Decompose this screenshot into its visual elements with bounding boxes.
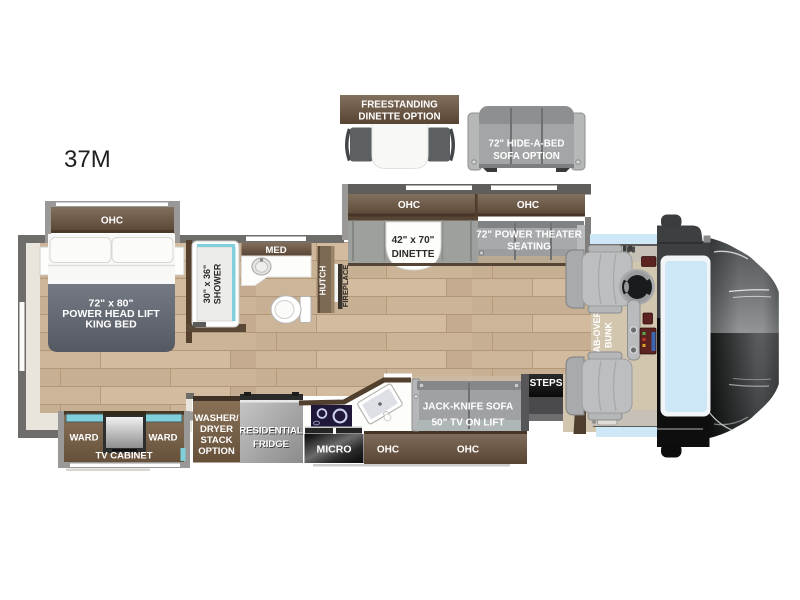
svg-text:KING BED: KING BED	[85, 319, 137, 331]
svg-text:FREESTANDING: FREESTANDING	[361, 100, 438, 111]
svg-text:MED: MED	[265, 245, 286, 256]
svg-text:30" x 36": 30" x 36"	[202, 265, 212, 304]
svg-text:STACK: STACK	[200, 435, 232, 446]
svg-text:JACK-KNIFE SOFA: JACK-KNIFE SOFA	[423, 402, 514, 413]
svg-text:WARD: WARD	[69, 433, 98, 444]
svg-text:BUNK: BUNK	[604, 322, 614, 348]
svg-text:STEPS: STEPS	[530, 378, 563, 389]
svg-text:72" POWER THEATER: 72" POWER THEATER	[476, 230, 582, 241]
svg-text:SOFA OPTION: SOFA OPTION	[493, 151, 560, 162]
svg-text:RESIDENTIAL: RESIDENTIAL	[239, 426, 303, 437]
svg-text:WASHER/: WASHER/	[194, 413, 239, 424]
svg-text:50" TV ON LIFT: 50" TV ON LIFT	[431, 418, 504, 429]
svg-text:TV CABINET: TV CABINET	[96, 451, 153, 462]
svg-text:OHC: OHC	[457, 445, 479, 456]
svg-text:SEATING: SEATING	[507, 242, 551, 253]
svg-text:WARD: WARD	[148, 433, 177, 444]
svg-text:42" x 70": 42" x 70"	[392, 235, 435, 246]
svg-text:HUTCH: HUTCH	[318, 266, 328, 296]
svg-text:FRIDGE: FRIDGE	[253, 439, 289, 450]
svg-text:OHC: OHC	[398, 200, 420, 211]
svg-text:FIREPLACE: FIREPLACE	[341, 265, 350, 308]
svg-text:DINETTE: DINETTE	[392, 249, 435, 260]
svg-text:OHC: OHC	[101, 216, 123, 227]
svg-text:OHC: OHC	[377, 445, 399, 456]
svg-text:72" HIDE-A-BED: 72" HIDE-A-BED	[489, 139, 565, 150]
svg-text:SHOWER: SHOWER	[213, 263, 223, 304]
svg-text:37M: 37M	[64, 146, 111, 173]
svg-text:MICRO: MICRO	[317, 444, 352, 456]
svg-text:OPTION: OPTION	[198, 446, 235, 457]
svg-text:DINETTE OPTION: DINETTE OPTION	[358, 112, 440, 123]
svg-text:DRYER: DRYER	[200, 424, 233, 435]
svg-text:OHC: OHC	[517, 200, 539, 211]
